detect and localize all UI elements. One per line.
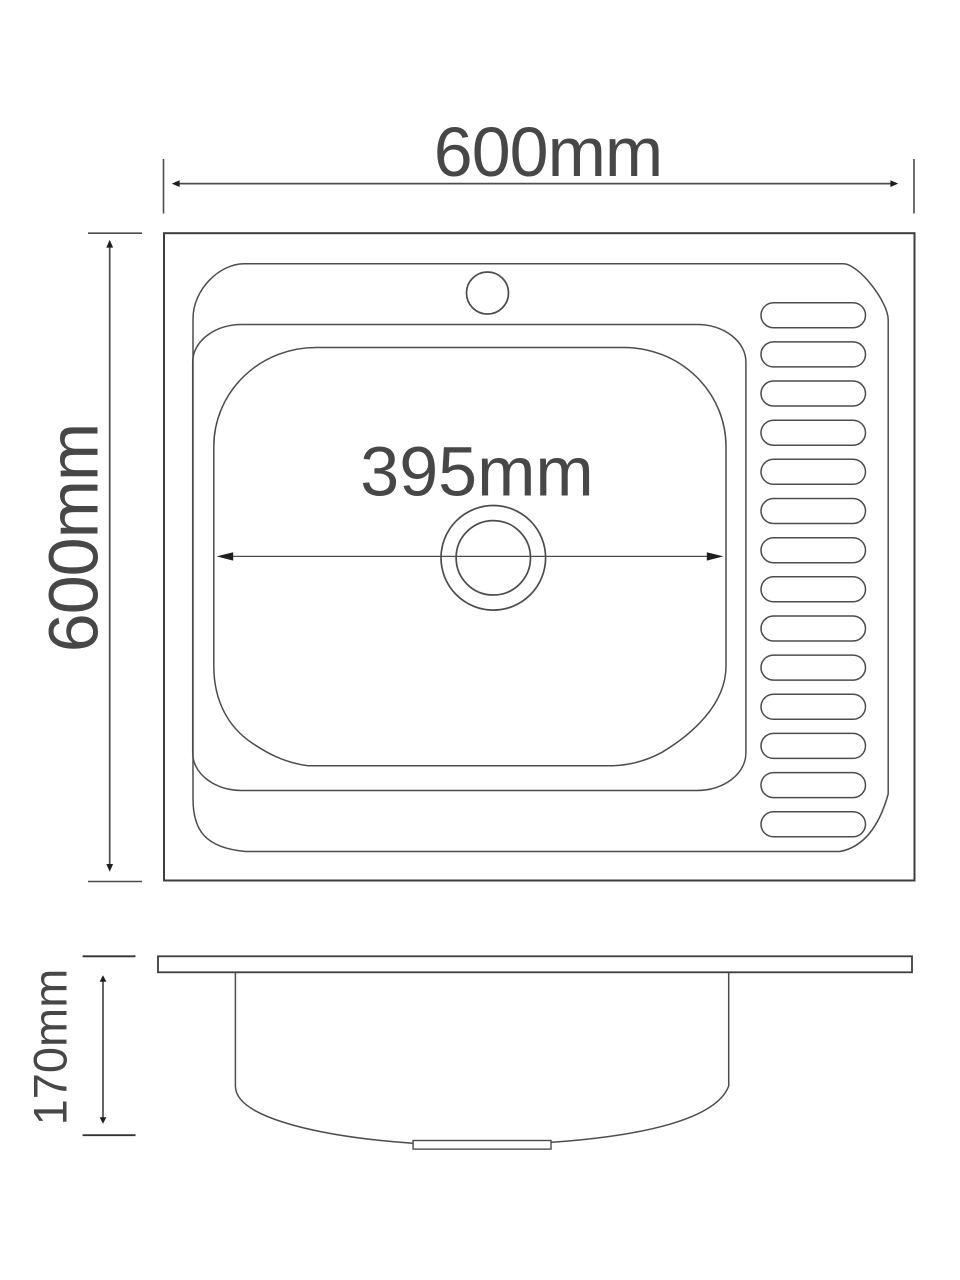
svg-text:395mm: 395mm	[360, 433, 593, 511]
svg-text:600mm: 600mm	[434, 113, 662, 191]
svg-text:170mm: 170mm	[24, 969, 77, 1126]
svg-text:600mm: 600mm	[35, 424, 113, 652]
